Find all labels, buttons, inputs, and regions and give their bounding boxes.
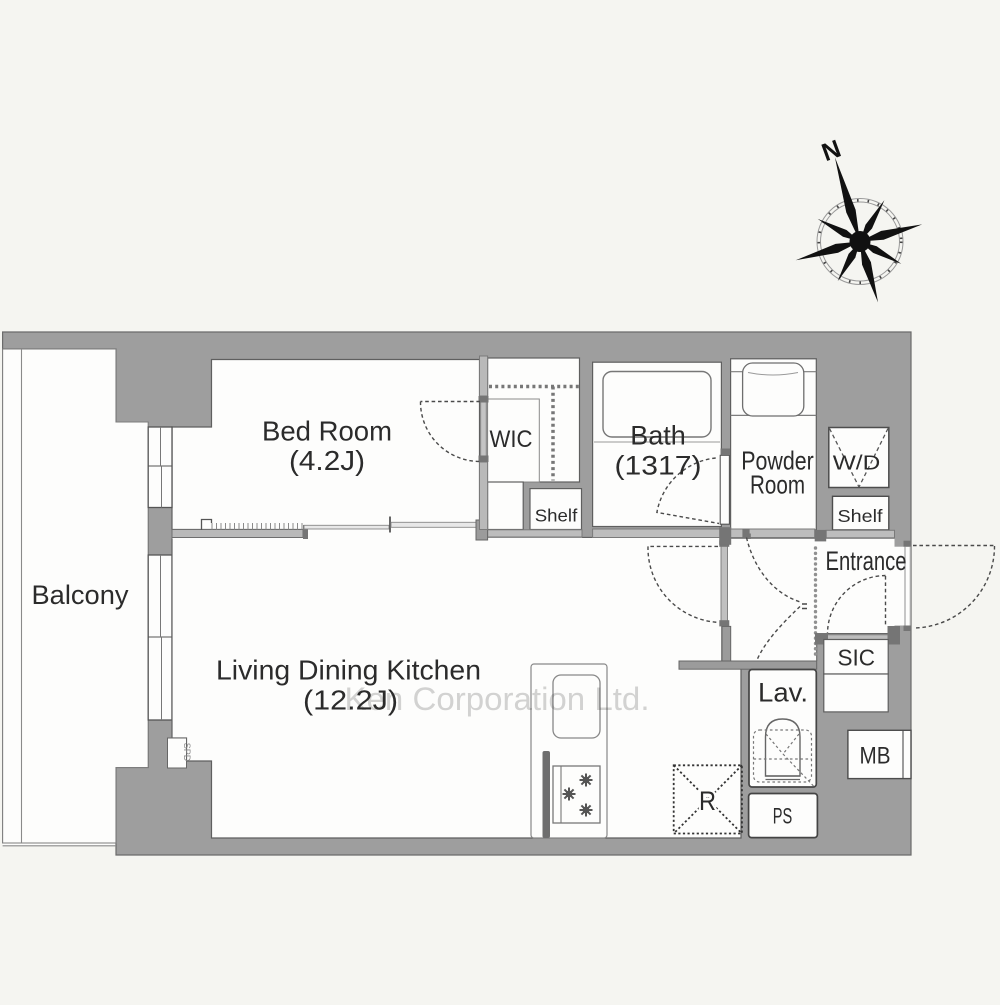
svg-text:WIC: WIC [490, 426, 533, 453]
svg-text:Bed Room: Bed Room [262, 416, 392, 447]
svg-text:SPD: SPD [182, 743, 192, 762]
svg-text:Entrance: Entrance [826, 546, 907, 576]
svg-text:MB: MB [860, 743, 891, 770]
svg-text:R: R [699, 786, 716, 816]
svg-text:Shelf: Shelf [535, 506, 578, 526]
svg-text:Lav.: Lav. [758, 678, 808, 708]
svg-text:Living Dining Kitchen: Living Dining Kitchen [216, 655, 481, 686]
svg-text:Balcony: Balcony [32, 580, 129, 610]
svg-text:W/D: W/D [833, 453, 881, 475]
svg-text:Shelf: Shelf [838, 506, 883, 526]
svg-text:PS: PS [773, 804, 793, 829]
svg-text:SIC: SIC [838, 645, 876, 671]
svg-text:Bath: Bath [630, 421, 686, 451]
svg-text:Room: Room [750, 470, 805, 500]
svg-text:(12.2J): (12.2J) [303, 685, 398, 716]
svg-text:(4.2J): (4.2J) [289, 445, 365, 476]
svg-text:(1317): (1317) [615, 451, 702, 481]
